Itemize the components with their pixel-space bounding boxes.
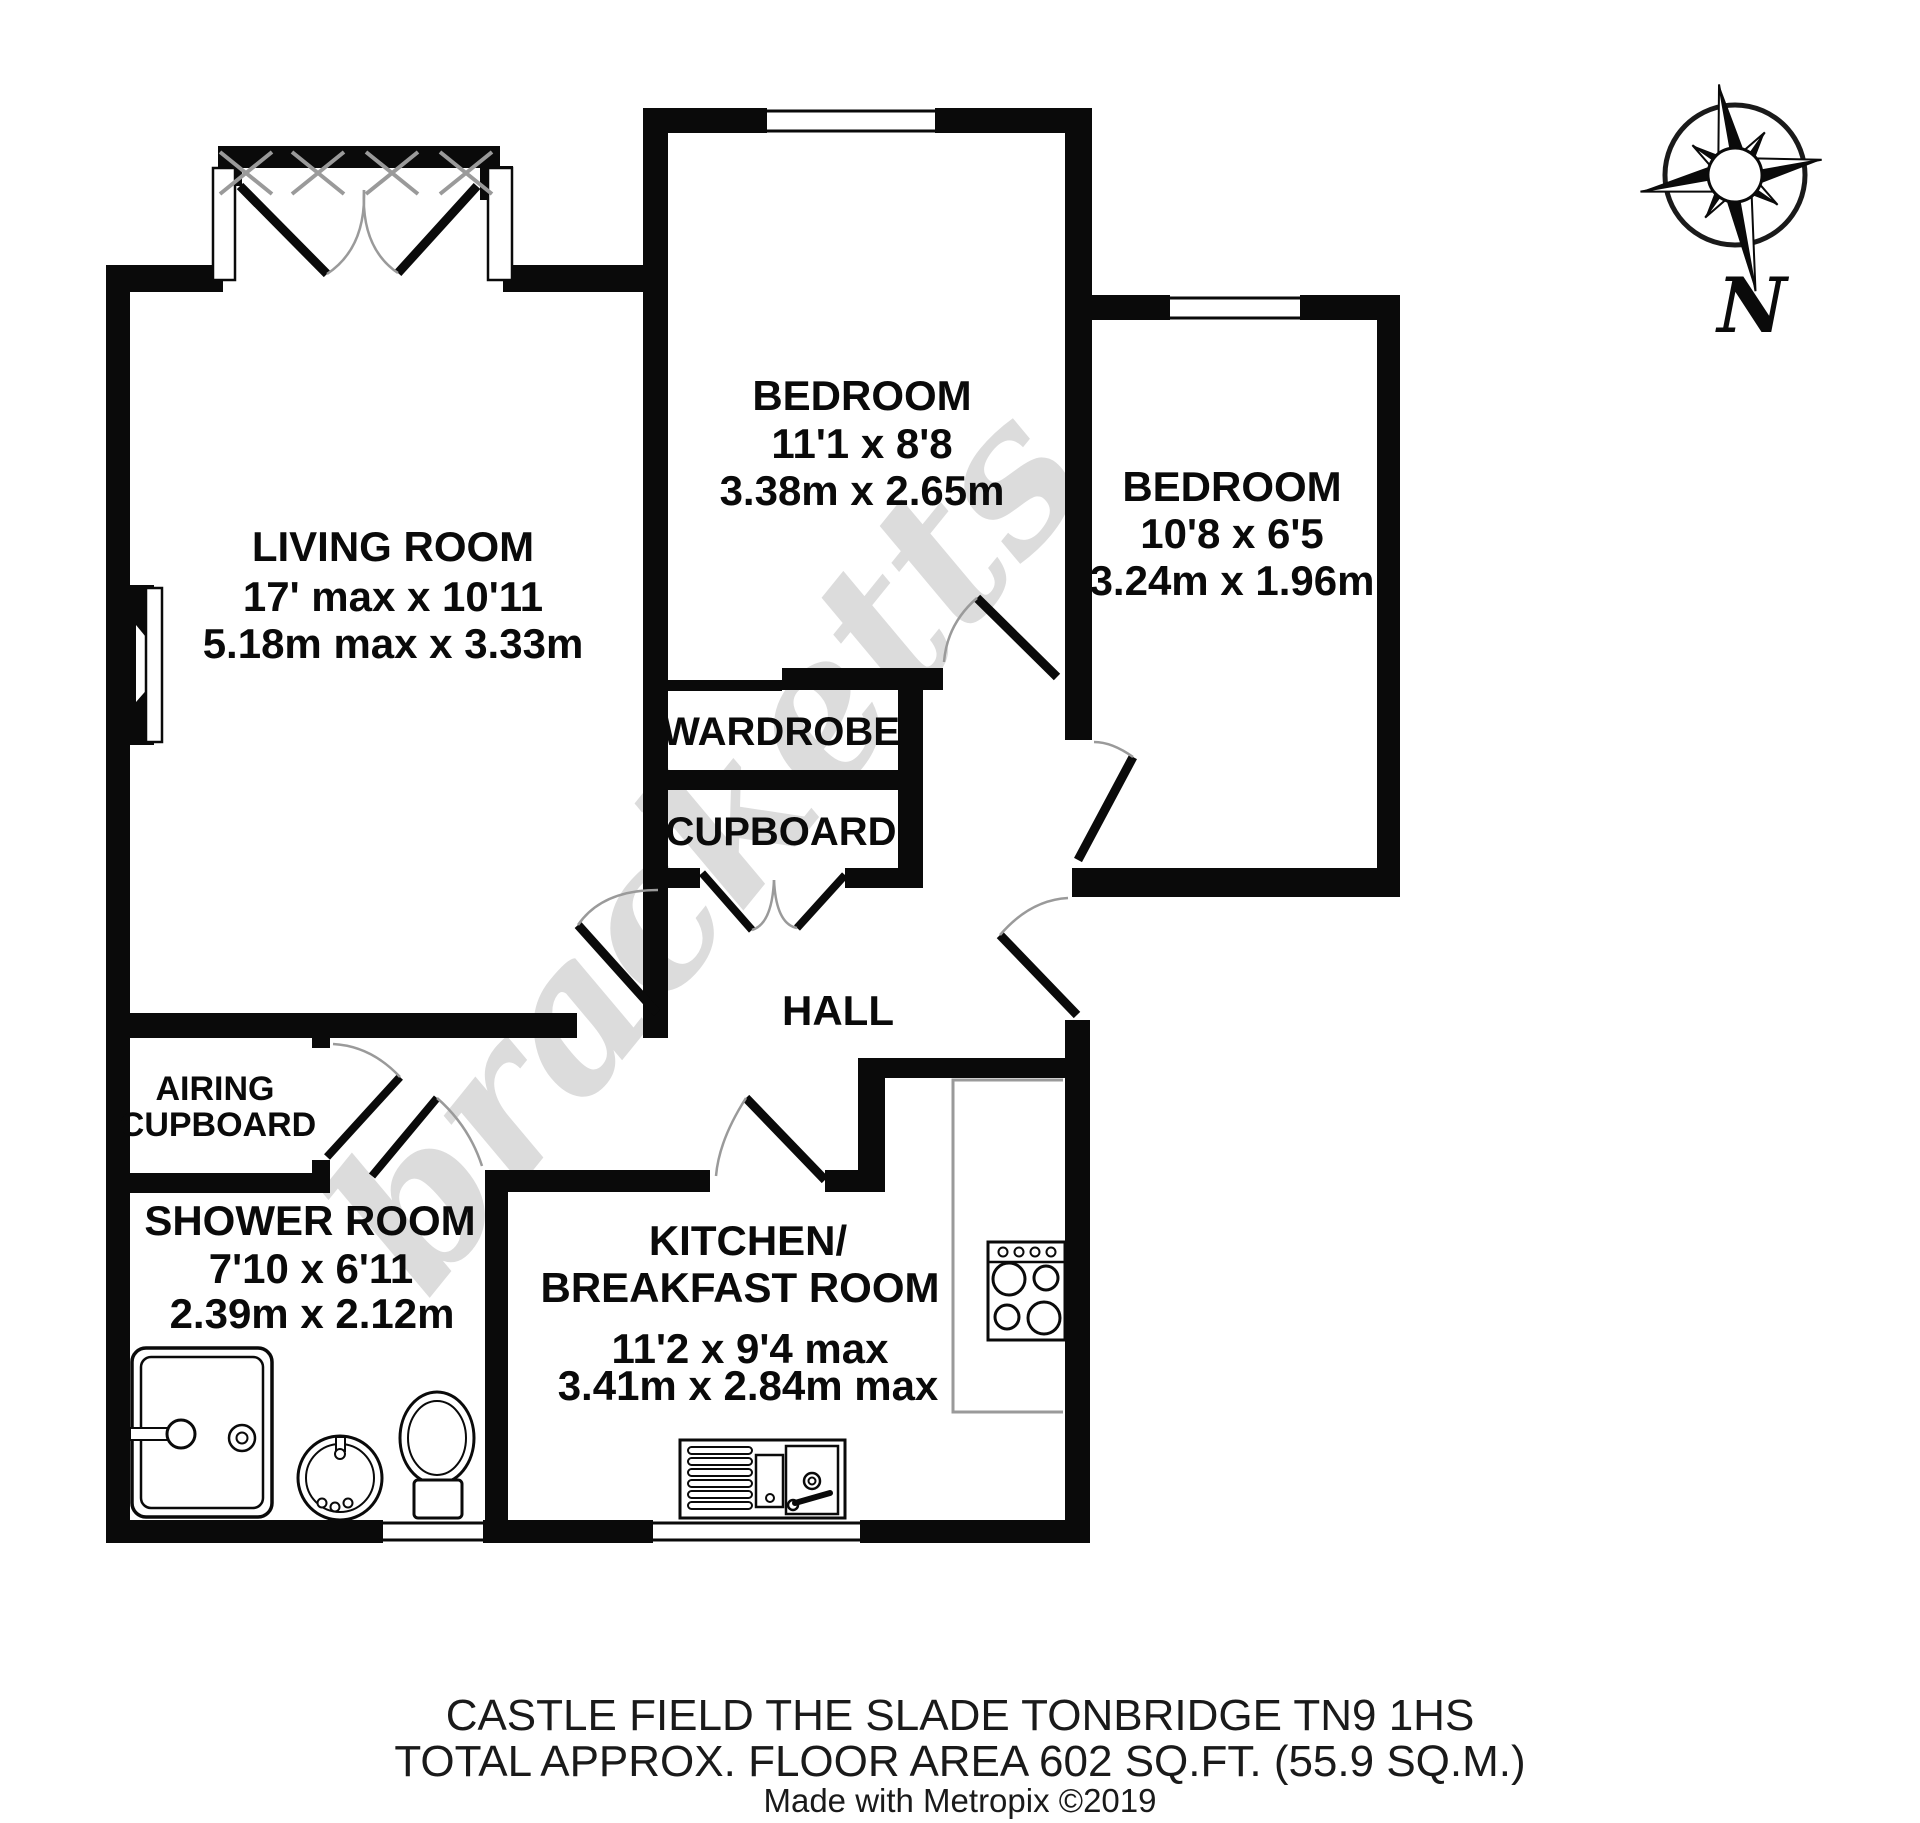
living-room-label: LIVING ROOM	[252, 523, 534, 570]
footer-address: CASTLE FIELD THE SLADE TONBRIDGE TN9 1HS	[446, 1691, 1475, 1740]
bedroom1-label: BEDROOM	[752, 372, 971, 419]
bedroom1-dims-imperial: 11'1 x 8'8	[771, 420, 952, 467]
footer-floor-area: TOTAL APPROX. FLOOR AREA 602 SQ.FT. (55.…	[394, 1737, 1525, 1786]
kitchen-label-line2: BREAKFAST ROOM	[541, 1264, 940, 1311]
french-doors	[240, 186, 477, 274]
kitchen-window	[653, 1520, 860, 1543]
shower-room-window	[383, 1520, 483, 1543]
shower-room-dims-metric: 2.39m x 2.12m	[170, 1290, 455, 1337]
shower-icon	[130, 1348, 272, 1517]
wardrobe-label: WARDROBE	[662, 710, 900, 754]
hall-label: HALL	[782, 987, 894, 1034]
sink-icon	[680, 1440, 845, 1518]
hob-icon	[988, 1242, 1065, 1340]
footer-credit: Made with Metropix ©2019	[763, 1782, 1156, 1819]
compass-north-label: N	[1715, 261, 1789, 350]
airing-cupboard-label-line2: CUPBOARD	[120, 1106, 316, 1144]
bedroom2-door	[1078, 742, 1133, 860]
airing-cupboard-label-line1: AIRING	[156, 1070, 275, 1108]
basin-icon	[298, 1436, 382, 1520]
bedroom2-dims-imperial: 10'8 x 6'5	[1140, 510, 1323, 557]
fireplace-icon	[128, 585, 162, 745]
footer: CASTLE FIELD THE SLADE TONBRIDGE TN9 1HS…	[394, 1691, 1525, 1819]
cupboard-label: CUPBOARD	[665, 810, 896, 854]
bedroom1-dims-metric: 3.38m x 2.65m	[720, 467, 1005, 514]
kitchen-dims-metric: 3.41m x 2.84m max	[558, 1362, 939, 1409]
toilet-icon	[400, 1392, 474, 1518]
bedroom2-window	[1170, 295, 1300, 320]
shower-room-dims-imperial: 7'10 x 6'11	[209, 1245, 414, 1292]
entrance-door	[1000, 898, 1077, 1015]
floorplan-drawing: bracketts	[0, 0, 1920, 1823]
kitchen-label-line1: KITCHEN/	[649, 1217, 848, 1264]
bedroom2-label: BEDROOM	[1122, 463, 1341, 510]
floorplan-page: bracketts	[0, 0, 1920, 1823]
shower-room-label: SHOWER ROOM	[144, 1197, 475, 1244]
bedroom1-window	[767, 108, 935, 133]
kitchen-door	[716, 1098, 825, 1180]
living-room-dims-imperial: 17' max x 10'11	[243, 573, 543, 620]
living-room-dims-metric: 5.18m max x 3.33m	[203, 620, 584, 667]
bedroom2-dims-metric: 3.24m x 1.96m	[1090, 557, 1375, 604]
